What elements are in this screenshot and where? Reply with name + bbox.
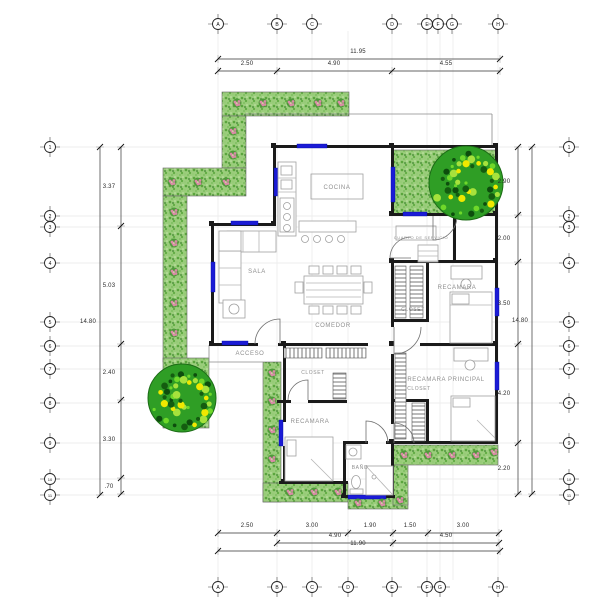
flower-part [236,102,238,104]
grid-bubble-label: 6 [568,344,571,350]
furniture-circle [338,236,345,243]
tree-foliage [488,193,495,200]
flower-part [495,449,498,452]
floor-plan-drawing: COCINASALACOMEDORACCESOCLOSETRECAMARABAÑ… [0,0,607,609]
tree-foliage [173,391,181,399]
flower-part [173,302,175,304]
room-label: RECAMARA PRINCIPAL [407,377,484,383]
tree-foliage [441,177,445,181]
room-label: COMEDOR [315,323,351,329]
column [389,143,394,148]
flower-cluster [268,426,277,435]
door-swing [366,421,388,443]
flower-part [291,492,294,495]
column [493,258,498,263]
wall [278,343,368,346]
flower-part [292,103,295,106]
grid-bubble-label: 8 [49,401,52,407]
tree-foliage [163,418,169,424]
furniture [323,306,333,314]
tree-foliage [487,168,494,175]
flower-cluster [448,451,457,460]
grid-bubble-label: 5 [568,320,571,326]
column [389,258,394,263]
tree-foliage [161,400,168,407]
flower-part [273,373,276,376]
dimension-label: 4.55 [440,61,453,67]
flower-part [173,242,175,244]
tree-foliage [460,155,466,161]
dimension-label: 3.37 [103,184,116,190]
column [493,211,498,216]
flower-part [493,451,495,453]
room-label: SALA [248,269,266,275]
tree-foliage [441,205,447,211]
tree-foliage [480,209,484,213]
flower-cluster [354,499,363,508]
tree-foliage [153,408,156,411]
tree-foliage [462,160,469,167]
grid-bubble-label: G [450,22,454,28]
column [281,341,286,346]
flower-part [337,491,339,493]
furniture-circle [314,236,321,243]
grid-bubble-label: 7 [568,367,571,373]
furniture [451,266,482,279]
window [222,341,248,345]
flower-cluster [286,488,295,497]
tree-foliage [196,417,200,421]
window [348,495,386,499]
flower-part [429,455,432,458]
tree-foliage [490,163,496,169]
flower-cluster [222,178,231,187]
dimension-label: 5.03 [103,283,116,289]
grid-bubble-label: F [425,585,428,591]
flower-part [234,131,237,134]
flower-cluster [337,99,346,108]
tree-foliage [162,395,166,399]
tree-foliage [468,211,474,217]
flower-part [175,243,178,246]
tree-foliage [201,409,208,416]
window [391,167,395,202]
flower-cluster [170,239,179,248]
dimension-label: 3.00 [457,523,470,529]
flower-part [273,430,276,433]
wall [453,215,456,262]
flower-cluster [472,451,481,460]
tree-foliage [483,161,488,166]
flower-part [238,100,241,103]
tree-foliage [187,419,193,425]
flower-cluster [259,99,268,108]
furniture [454,348,488,361]
tree-foliage [169,386,172,389]
flower-part [175,212,178,215]
tree-foliage [200,416,208,424]
closet-shelves [326,348,366,358]
tree-foliage [446,182,450,186]
furniture-circle [284,225,291,232]
tree-foliage [196,383,203,390]
flower-part [262,102,264,104]
tree-foliage [470,164,474,168]
flower-part [234,128,237,131]
tree-foliage [433,194,441,202]
grid-bubble-label: 8 [568,401,571,407]
flower-part [317,102,319,104]
grid-bubble-label: 3 [568,225,571,231]
dimension-label: 2.40 [103,370,116,376]
grid-bubble-label: 6 [49,344,52,350]
grid-bubble-label: 4 [49,261,52,267]
tree-foliage [456,161,461,166]
room-label: CLOSET [407,386,431,392]
grid-bubble-label: C [310,22,314,28]
floor-plan-canvas: COCINASALACOMEDORACCESOCLOSETRECAMARABAÑ… [0,0,607,609]
grid-bubble-label: 9 [49,441,52,447]
grid-bubble-label: 3 [49,225,52,231]
flower-part [383,503,386,506]
furniture [351,266,361,274]
dimension-label: 3.50 [498,301,511,307]
room-label: COCINA [324,185,351,191]
tree-foliage [483,202,487,206]
wall [391,354,394,424]
flower-part [340,102,342,104]
flower-cluster [424,451,433,460]
furniture [350,489,363,494]
window [297,144,327,148]
tree-foliage [193,378,198,383]
flower-part [290,102,292,104]
grid-bubble-label: 4 [568,261,571,267]
garden-area [393,445,498,465]
garden-area [222,116,246,168]
door-swing [288,380,308,400]
tree-foliage [476,161,481,166]
furniture [287,440,296,456]
wall [393,319,429,322]
tree-foliage [170,373,174,377]
flower-cluster [168,178,177,187]
flower-part [271,429,273,431]
flower-cluster [490,448,499,457]
room-label: RECAMARA [291,419,330,425]
flower-part [175,303,178,306]
grid-bubble-label: 1 [49,145,52,151]
flower-part [477,452,480,455]
tree-foliage [487,187,493,193]
flower-cluster [287,99,296,108]
column [389,439,394,444]
room-label: RECAMARA [438,285,477,291]
tree-foliage [451,165,454,168]
tree-foliage [204,396,209,401]
door-swing [394,327,421,354]
flower-part [173,332,175,334]
wall [393,260,497,263]
grid-bubble-label: D [390,22,394,28]
furniture-circle [302,236,309,243]
tree-foliage [459,211,462,214]
tree-foliage [462,186,469,193]
room-label: BAÑO [352,464,369,471]
grid-bubble-label: 10 [48,477,53,482]
grid-bubble-label: 5 [49,320,52,326]
tree-foliage [448,195,453,200]
dimension-label: 3.30 [103,437,116,443]
dimension-label: 2.20 [498,466,511,472]
flower-cluster [310,488,319,497]
dimension-label: 3.00 [306,523,319,529]
flower-cluster [378,499,387,508]
flower-part [383,500,386,503]
flower-cluster [268,397,277,406]
tree-foliage [480,166,487,173]
flower-part [273,401,276,404]
grid-bubble-label: H [496,22,500,28]
closet-shelves [284,348,322,358]
flower-part [451,454,453,456]
flower-part [381,502,383,504]
flower-part [342,100,345,103]
furniture [219,231,241,251]
flower-part [173,182,176,185]
window [279,420,283,446]
flower-part [175,240,178,243]
tree-foliage [158,390,163,395]
flower-part [401,497,404,500]
dimension-label: 4.90 [329,533,342,539]
flower-part [273,370,276,373]
furniture [309,306,319,314]
wall [308,400,347,403]
wall [393,441,497,444]
flower-part [273,427,276,430]
grid-bubble-label: 7 [49,367,52,373]
room-label: ACCESO [236,351,265,357]
furniture-circle [284,203,291,210]
tree-foliage [209,393,212,396]
flower-part [399,499,401,501]
furniture [351,306,361,314]
furniture-circle [372,475,376,479]
dimension-label: 2.50 [241,61,254,67]
flower-cluster [233,99,242,108]
grid-bubble-label: C [310,585,314,591]
flower-part [234,155,237,158]
tree-foliage [445,187,452,194]
furniture [453,398,470,407]
flower-part [271,372,273,374]
flower-part [403,454,405,456]
tree-foliage [476,156,479,159]
dimension-label: 14.80 [512,318,528,324]
flower-part [175,209,178,212]
tree-foliage [493,185,498,190]
flower-part [319,103,322,106]
furniture [452,294,469,304]
flower-part [273,456,276,459]
furniture [281,180,292,189]
column [389,341,394,346]
tree-foliage [173,383,178,388]
flower-part [289,491,291,493]
furniture-circle [465,360,475,370]
grid-bubble-label: G [438,585,442,591]
flower-part [175,269,178,272]
tree [429,146,503,220]
window [211,262,215,292]
dimension-label: 2.00 [498,236,511,242]
toilet [352,476,361,489]
dimension-label: 4.20 [498,391,511,397]
flower-part [173,179,176,182]
flower-part [175,272,178,275]
furniture-circle [284,214,291,221]
column [493,143,498,148]
column [209,221,214,226]
dimension-label: 2.90 [498,179,511,185]
flower-part [271,400,273,402]
flower-part [359,503,362,506]
tree-foliage [156,416,162,422]
flower-part [495,452,498,455]
furniture [323,266,333,274]
furniture [418,245,438,262]
flower-cluster [170,208,179,217]
column [389,211,394,216]
tree-foliage [199,392,203,396]
flower-cluster [170,299,179,308]
flower-part [225,181,227,183]
flower-cluster [400,451,409,460]
flower-part [173,271,175,273]
window [495,362,499,390]
flower-part [264,103,267,106]
grid-bubble-label: 1 [568,145,571,151]
flower-part [199,179,202,182]
flower-cluster [396,496,405,505]
flower-cluster [170,268,179,277]
flower-part [264,100,267,103]
furniture [299,221,356,232]
flower-part [197,181,199,183]
tree-foliage [464,181,467,184]
flower-part [313,491,315,493]
tree-foliage [455,180,460,185]
dimension-label: 1.50 [404,523,417,529]
flower-part [405,452,408,455]
wall [426,399,429,444]
tree [148,364,216,432]
flower-part [175,330,178,333]
flower-part [315,492,318,495]
flower-part [175,300,178,303]
tree-foliage [451,212,455,216]
flower-cluster [314,99,323,108]
flower-part [429,452,432,455]
closet-shelves [412,403,425,441]
flower-cluster [229,151,238,160]
flower-part [175,333,178,336]
flower-part [453,455,456,458]
grid-bubble-label: 9 [568,441,571,447]
dimension-label: 2.50 [241,523,254,529]
tree-foliage [487,200,494,207]
flower-part [405,455,408,458]
flower-part [475,454,477,456]
tree-foliage [495,192,500,197]
flower-part [427,454,429,456]
furniture [281,166,292,175]
flower-part [401,500,404,503]
flower-part [232,130,234,132]
dimension-label: 1.90 [364,523,377,529]
dimension-label: 14.80 [80,319,96,325]
flower-cluster [268,369,277,378]
dimension-label: .70 [105,484,114,490]
wall [343,441,346,497]
tree-foliage [490,179,494,183]
dimension-label: 11.95 [350,49,366,55]
tree-foliage [192,423,197,428]
flower-cluster [229,127,238,136]
grid-bubble-label: F [436,22,439,28]
flower-part [453,452,456,455]
flower-part [238,103,241,106]
wall [345,441,368,444]
grid-bubble-label: H [496,585,500,591]
furniture [309,266,319,274]
column [271,143,276,148]
tree-foliage [173,423,177,427]
furniture-circle [326,236,333,243]
dimension-label: 4.90 [328,61,341,67]
tree-foliage [187,375,190,378]
furniture [364,282,372,293]
window [274,168,278,196]
flower-part [232,154,234,156]
wall [391,260,394,327]
tree-foliage [187,380,192,385]
flower-part [319,100,322,103]
furniture [337,306,347,314]
grid-bubble-label: D [346,585,350,591]
tree-foliage [193,373,197,377]
flower-part [339,489,342,492]
flower-part [271,458,273,460]
furniture [295,282,303,293]
room-label: CUARTO DE SERVICIO [394,235,448,240]
tree-foliage [178,399,182,403]
closet-shelves [333,373,346,399]
column [271,221,276,226]
tree-foliage [164,389,170,395]
room-label: CLOSET [301,370,325,376]
flower-part [342,103,345,106]
flower-cluster [268,455,277,464]
flower-part [171,181,173,183]
wall [279,481,348,484]
window [403,212,427,216]
tree-foliage [169,380,173,384]
furniture [219,251,241,303]
flower-part [359,500,362,503]
tree-foliage [456,169,461,174]
